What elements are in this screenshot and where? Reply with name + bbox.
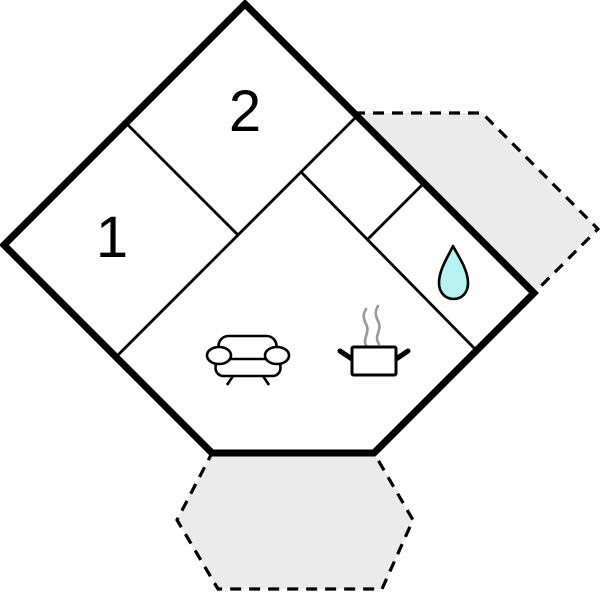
- building-floor: [4, 4, 534, 453]
- room-1-label: 1: [96, 205, 128, 270]
- terrace-bottom: [177, 453, 413, 589]
- floor-plan: 1 2: [0, 0, 600, 593]
- floor-plan-drawing: 1 2: [0, 0, 600, 593]
- room-2-label: 2: [229, 79, 261, 144]
